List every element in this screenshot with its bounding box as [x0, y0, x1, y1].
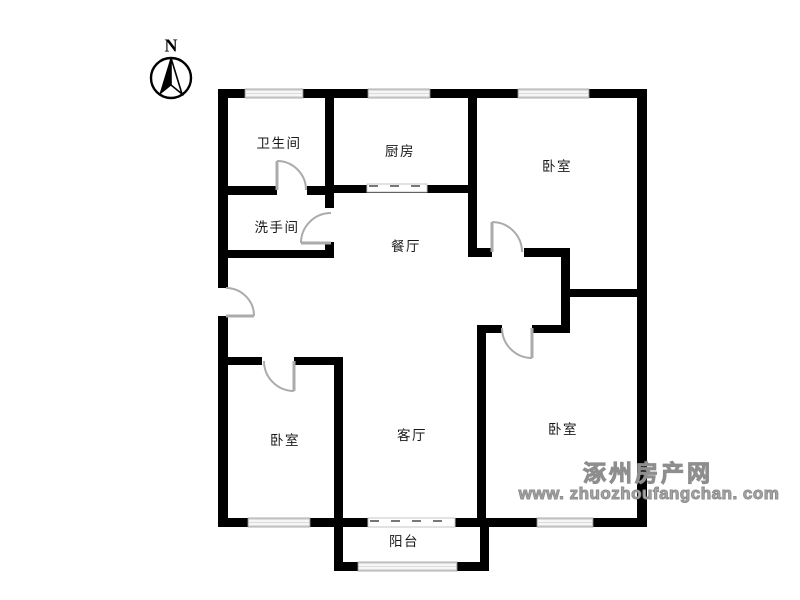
door-swing-bedroom-bottom-left [264, 361, 294, 391]
window-symbol [248, 518, 310, 527]
sliding-door-symbol [368, 518, 455, 527]
wall-segment [218, 89, 228, 288]
floor-plan-canvas: N 卫生间 厨房 卧室 洗手间 餐厅 客厅 卧室 卧室 阳台 涿州房产网 www… [0, 0, 800, 600]
room-label-dining: 餐厅 [391, 235, 421, 255]
room-label-kitchen: 厨房 [385, 140, 415, 160]
wall-segment [468, 98, 477, 257]
window-symbol [537, 518, 593, 527]
watermark-site-url: www. zhuozhoufangchan. com [519, 484, 780, 504]
wall-segment [477, 325, 502, 333]
wall-segment [228, 250, 333, 258]
room-label-bedroom-bottom-left: 卧室 [270, 429, 300, 449]
door-swing-bathroom [277, 161, 306, 190]
floor-plan-drawing [0, 0, 800, 600]
door-swing-bedroom-top-right [492, 222, 522, 252]
wall-segment [524, 248, 570, 257]
door-swing-entry [226, 288, 254, 316]
wall-segment [294, 357, 343, 365]
wall-segment [218, 316, 228, 527]
room-label-washroom: 洗手间 [255, 216, 300, 236]
wall-segment [307, 186, 334, 195]
door-swing-living-hall [502, 328, 532, 358]
wall-segment [228, 186, 277, 195]
sliding-door-symbol [367, 184, 427, 192]
wall-segment [561, 257, 570, 333]
watermark-site-name: 涿州房产网 [583, 454, 713, 488]
wall-segment [334, 357, 343, 571]
window-symbol [245, 89, 303, 98]
room-label-balcony: 阳台 [389, 530, 419, 550]
wall-segment [532, 325, 570, 333]
compass-north-label: N [165, 36, 178, 57]
compass-icon [151, 58, 191, 98]
room-label-bedroom-top-right: 卧室 [542, 155, 572, 175]
wall-segment [228, 357, 262, 365]
window-symbol [518, 89, 589, 98]
room-label-bedroom-bottom-right: 卧室 [548, 418, 578, 438]
window-symbol [368, 89, 430, 98]
door-swing-washroom [301, 213, 331, 243]
room-label-living: 客厅 [397, 424, 427, 444]
wall-segment [570, 289, 637, 297]
wall-segment [477, 325, 486, 527]
room-label-bathroom: 卫生间 [257, 132, 302, 152]
wall-segment [468, 248, 492, 257]
window-symbol [358, 562, 457, 571]
